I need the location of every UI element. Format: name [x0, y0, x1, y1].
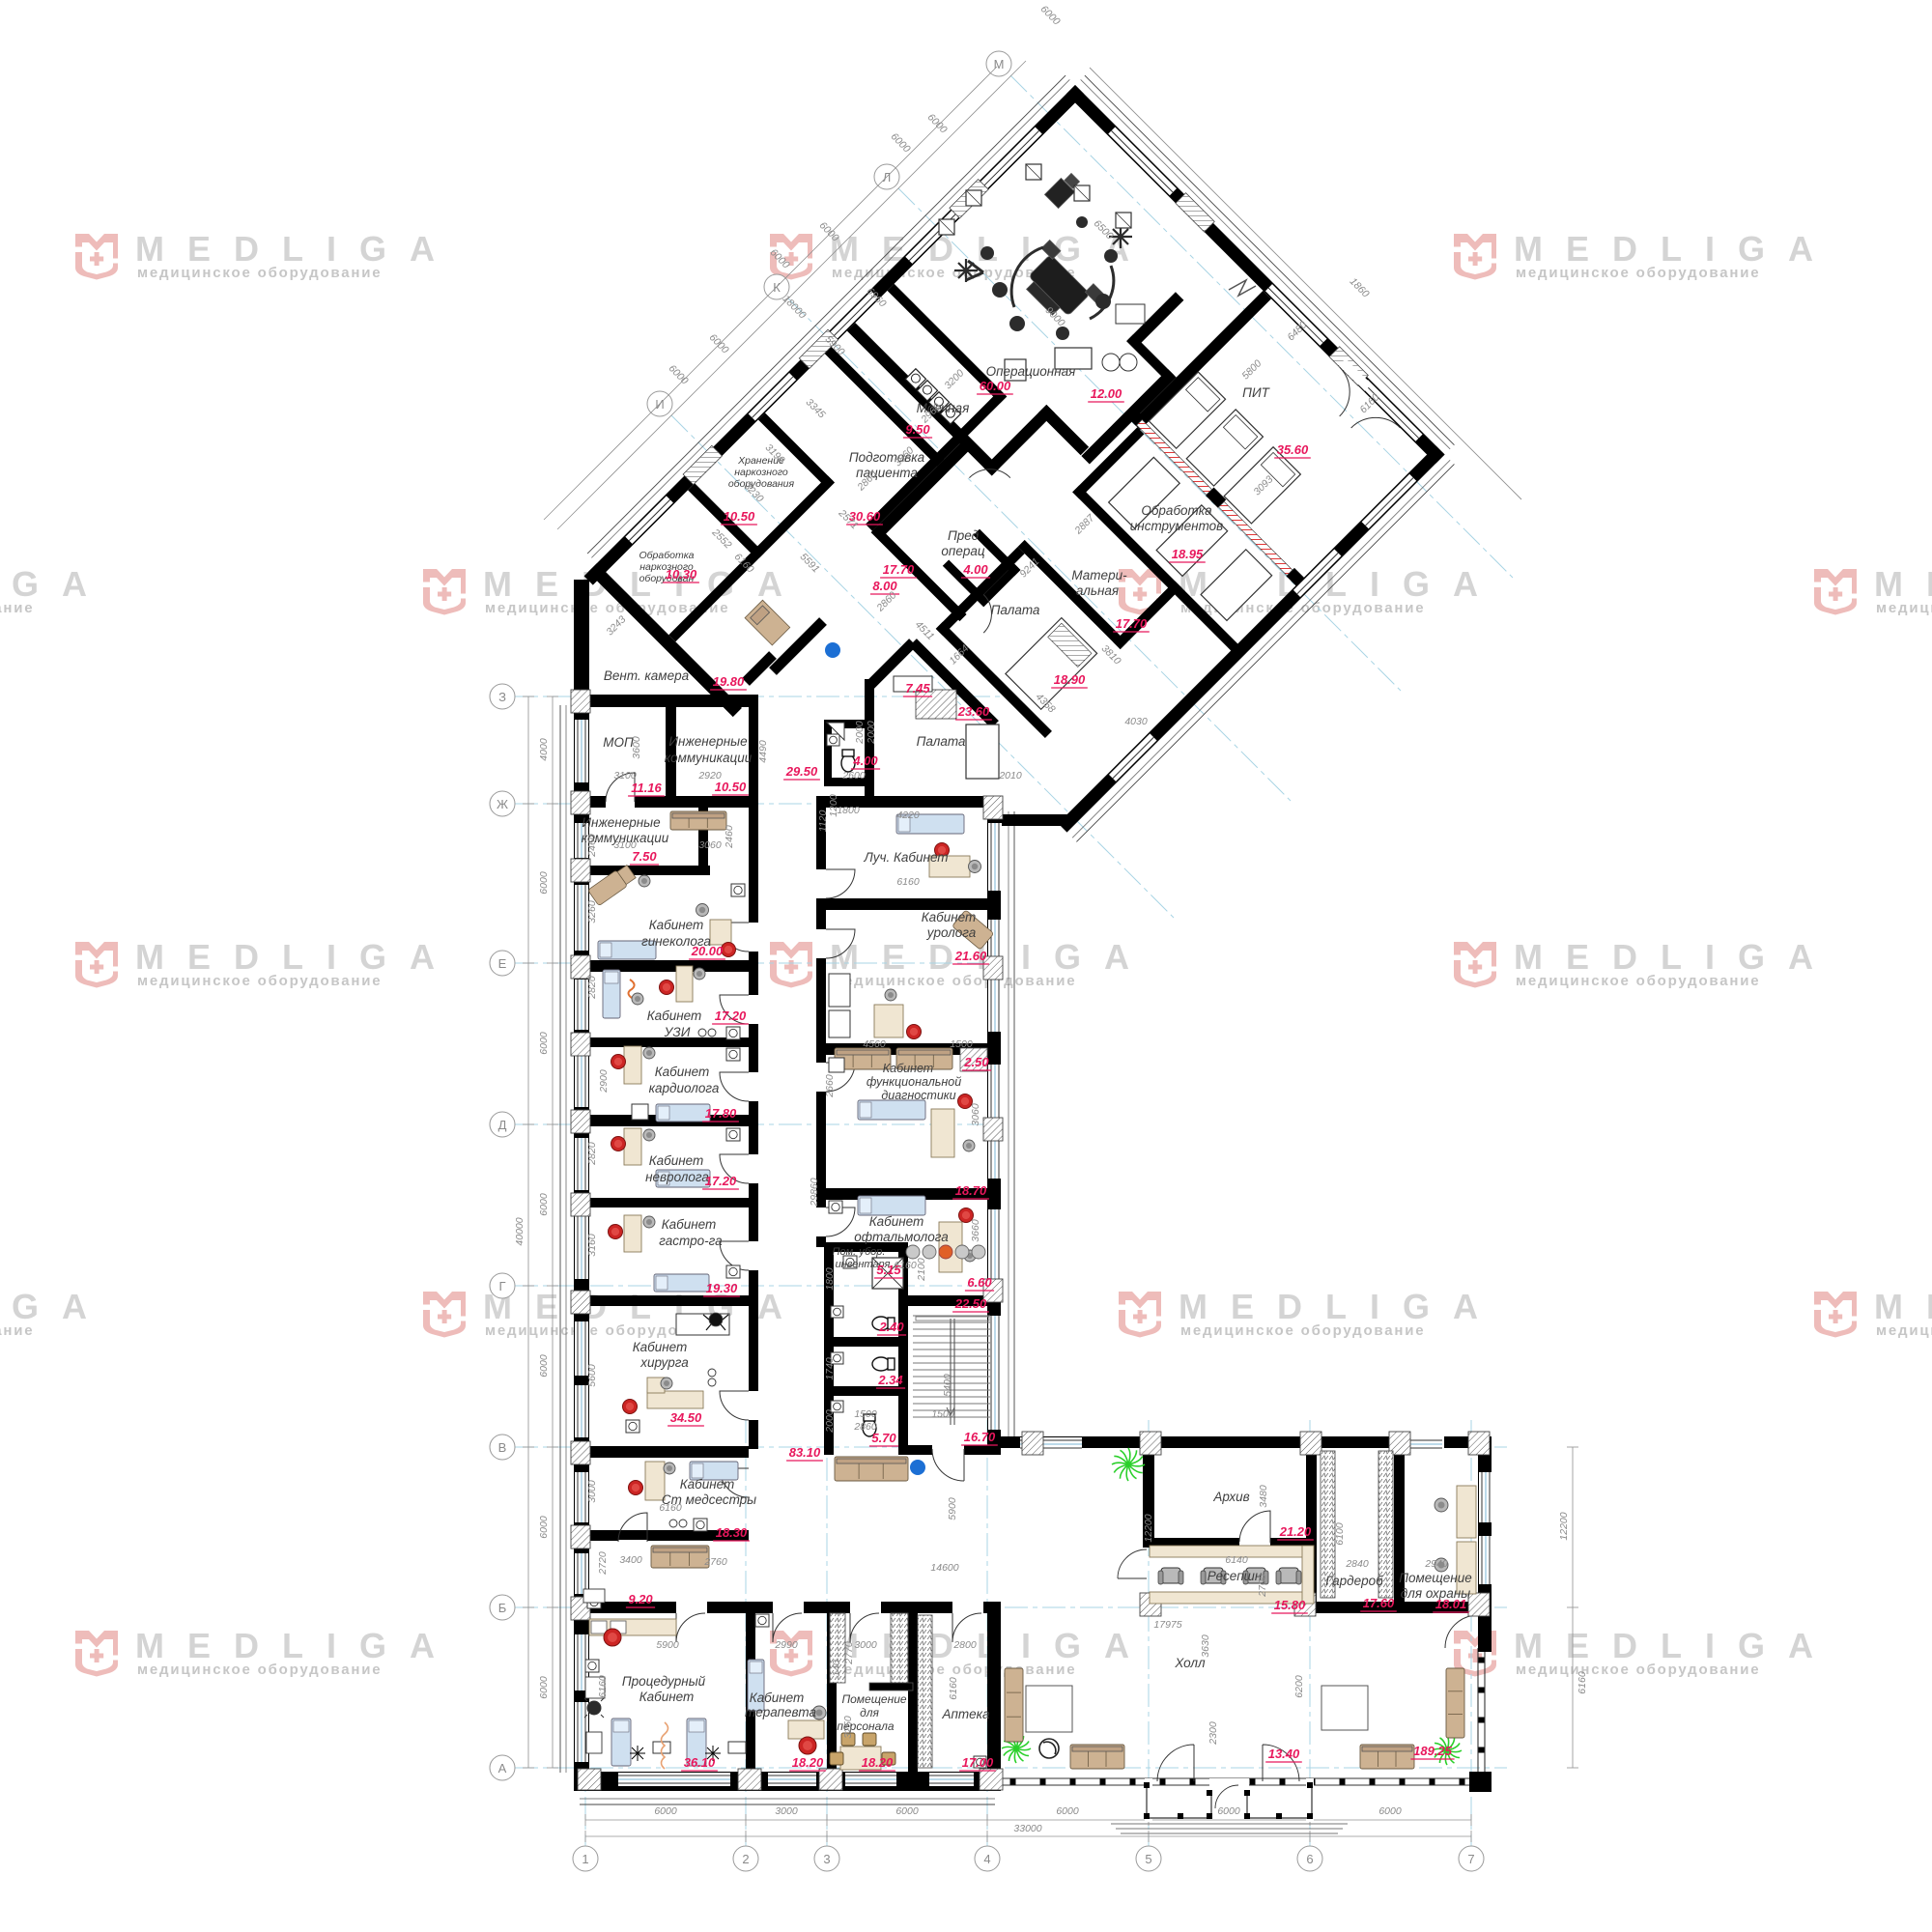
svg-text:наркозного: наркозного [734, 467, 788, 478]
svg-text:33000: 33000 [1013, 1823, 1041, 1834]
svg-text:Кабинет: Кабинет [639, 1690, 695, 1704]
svg-text:MEDLIGA: MEDLIGA [1514, 937, 1836, 977]
svg-text:19.80: 19.80 [713, 674, 745, 689]
svg-text:2700: 2700 [1257, 1574, 1268, 1598]
svg-text:17975: 17975 [1153, 1619, 1181, 1631]
svg-text:9.20: 9.20 [628, 1592, 653, 1606]
svg-text:Обработка: Обработка [639, 550, 694, 561]
svg-text:2860: 2860 [853, 1421, 877, 1433]
svg-text:35.60: 35.60 [1277, 442, 1309, 457]
svg-text:19.30: 19.30 [706, 1281, 738, 1295]
svg-text:23.60: 23.60 [957, 704, 990, 719]
svg-text:хирурга: хирурга [639, 1355, 689, 1370]
svg-text:13.40: 13.40 [1268, 1747, 1300, 1761]
svg-text:М: М [994, 57, 1005, 71]
svg-text:2.34: 2.34 [877, 1373, 903, 1387]
svg-text:3060: 3060 [698, 839, 722, 851]
svg-text:уролога: уролога [926, 925, 977, 940]
svg-text:17.60: 17.60 [1363, 1596, 1395, 1610]
svg-text:медицинское оборудование: медицинское оборудование [832, 973, 1076, 989]
svg-text:6000: 6000 [538, 1032, 550, 1055]
svg-text:З: З [498, 690, 506, 704]
svg-text:медицинское оборудование: медицинское оборудование [1516, 265, 1760, 281]
svg-text:Д: Д [498, 1118, 507, 1132]
svg-text:5900: 5900 [947, 1497, 958, 1520]
svg-text:5400: 5400 [942, 1374, 953, 1397]
svg-text:6160: 6160 [948, 1677, 959, 1700]
svg-text:2920: 2920 [697, 770, 722, 781]
svg-text:Луч. Кабинет: Луч. Кабинет [863, 850, 948, 865]
svg-text:оборудования: оборудования [728, 478, 795, 490]
svg-text:16.70: 16.70 [964, 1430, 996, 1444]
svg-text:11.16: 11.16 [631, 781, 662, 795]
svg-text:5900: 5900 [656, 1639, 679, 1651]
svg-text:6000: 6000 [1056, 1805, 1079, 1817]
svg-text:36.10: 36.10 [684, 1755, 716, 1770]
svg-text:3000: 3000 [586, 1480, 598, 1503]
svg-text:6160: 6160 [896, 876, 920, 888]
svg-text:медицинское оборудование: медицинское оборудование [1876, 600, 1932, 616]
svg-text:MEDLIGA: MEDLIGA [0, 1287, 110, 1326]
svg-text:функциональной: функциональной [867, 1075, 961, 1089]
svg-text:А: А [498, 1761, 507, 1776]
svg-text:Б: Б [498, 1601, 507, 1615]
svg-text:MEDLIGA: MEDLIGA [1514, 229, 1836, 269]
svg-text:невролога: невролога [645, 1170, 709, 1184]
svg-text:офтальмолога: офтальмолога [854, 1230, 949, 1244]
svg-text:2820: 2820 [586, 1142, 598, 1166]
svg-text:2760: 2760 [703, 1556, 727, 1568]
svg-text:6140: 6140 [1225, 1554, 1248, 1566]
svg-text:MEDLIGA: MEDLIGA [0, 564, 110, 604]
svg-text:2100: 2100 [916, 1258, 927, 1282]
svg-text:2.50: 2.50 [963, 1055, 989, 1069]
svg-text:медицинское оборудование: медицинское оборудование [832, 1662, 1076, 1678]
svg-text:2940: 2940 [1424, 1558, 1448, 1570]
svg-text:медицинское оборудование: медицинское оборудование [1876, 1322, 1932, 1339]
svg-text:7.45: 7.45 [905, 681, 930, 696]
svg-text:MEDLIGA: MEDLIGA [135, 1626, 458, 1665]
svg-text:2990: 2990 [774, 1639, 798, 1651]
svg-text:40000: 40000 [514, 1217, 526, 1245]
svg-text:Инженерные: Инженерные [582, 815, 660, 830]
svg-text:4220: 4220 [896, 810, 920, 821]
svg-text:34.50: 34.50 [670, 1410, 702, 1425]
svg-text:Кабинет: Кабинет [649, 918, 704, 932]
svg-text:3660: 3660 [970, 1219, 981, 1242]
svg-text:Ресепшн: Ресепшн [1207, 1569, 1263, 1583]
svg-text:В: В [498, 1440, 507, 1455]
svg-text:6160: 6160 [1577, 1671, 1588, 1694]
svg-text:Кабинет: Кабинет [869, 1214, 924, 1229]
svg-text:6: 6 [1306, 1852, 1313, 1866]
svg-text:Аптека: Аптека [941, 1707, 990, 1721]
svg-text:6000: 6000 [538, 871, 550, 895]
svg-text:2820: 2820 [586, 976, 598, 1000]
svg-text:альная: альная [1076, 583, 1119, 598]
svg-text:8.00: 8.00 [872, 579, 897, 593]
svg-text:Е: Е [498, 956, 507, 971]
svg-text:кардиолога: кардиолога [649, 1081, 720, 1095]
svg-text:медицинское оборудование: медицинское оборудование [137, 973, 382, 989]
svg-text:17.80: 17.80 [705, 1106, 737, 1121]
svg-text:2.40: 2.40 [878, 1320, 904, 1334]
svg-text:10.50: 10.50 [724, 509, 755, 524]
svg-text:5: 5 [1145, 1852, 1151, 1866]
svg-text:MEDLIGA: MEDLIGA [1874, 564, 1932, 604]
svg-text:2660: 2660 [824, 1074, 836, 1098]
svg-text:медицинское оборудование: медицинское оборудование [137, 1662, 382, 1678]
svg-text:2770: 2770 [843, 1641, 855, 1665]
svg-text:18.70: 18.70 [955, 1183, 987, 1198]
svg-text:MEDLIGA: MEDLIGA [1179, 1287, 1501, 1326]
svg-text:140: 140 [831, 1660, 842, 1677]
svg-text:диагностики: диагностики [881, 1089, 955, 1102]
svg-text:6000: 6000 [538, 1354, 550, 1378]
svg-text:гастро-га: гастро-га [659, 1234, 723, 1248]
svg-text:Обработка: Обработка [1141, 503, 1212, 518]
svg-text:18.95: 18.95 [1172, 547, 1204, 561]
svg-text:1500: 1500 [950, 1038, 973, 1050]
svg-text:4030: 4030 [1124, 716, 1148, 727]
svg-text:4000: 4000 [538, 738, 550, 761]
svg-text:медицинское оборудование: медицинское оборудование [0, 600, 34, 616]
svg-text:Палата: Палата [917, 734, 966, 749]
svg-text:2720: 2720 [597, 1551, 609, 1576]
svg-text:Инженерные: Инженерные [668, 734, 747, 749]
svg-text:1740: 1740 [824, 1357, 836, 1380]
svg-text:83.10: 83.10 [789, 1445, 821, 1460]
svg-text:6160: 6160 [597, 1675, 609, 1698]
svg-text:Операционная: Операционная [986, 364, 1076, 379]
svg-text:22.50: 22.50 [954, 1296, 987, 1311]
svg-text:MEDLIGA: MEDLIGA [1514, 1626, 1836, 1665]
svg-text:Кабинет: Кабинет [649, 1153, 704, 1168]
svg-text:Помещение: Помещение [1399, 1571, 1472, 1585]
svg-text:коммуникации: коммуникации [665, 751, 753, 765]
svg-text:Вент. камера: Вент. камера [604, 668, 690, 683]
svg-text:медицинское оборудование: медицинское оборудование [0, 1322, 34, 1339]
svg-text:Кабинет: Кабинет [647, 1009, 702, 1023]
svg-text:2000: 2000 [824, 1409, 836, 1434]
svg-text:Кабинет: Кабинет [922, 910, 977, 924]
svg-text:6000: 6000 [1378, 1805, 1402, 1817]
svg-text:1500: 1500 [931, 1408, 954, 1420]
svg-text:Процедурный: Процедурный [622, 1674, 706, 1689]
svg-text:2000: 2000 [866, 721, 877, 745]
svg-text:К: К [773, 280, 781, 295]
svg-text:20.00: 20.00 [691, 944, 724, 958]
svg-text:MEDLIGA: MEDLIGA [1874, 1287, 1932, 1326]
svg-text:12200: 12200 [1143, 1514, 1154, 1542]
svg-text:6000: 6000 [538, 1676, 550, 1699]
svg-text:60.00: 60.00 [980, 379, 1011, 393]
svg-text:4: 4 [983, 1852, 990, 1866]
svg-text:ПИТ: ПИТ [1242, 385, 1270, 400]
svg-text:7: 7 [1467, 1852, 1474, 1866]
svg-text:Гардероб: Гардероб [1325, 1574, 1383, 1588]
svg-text:Кабинет: Кабинет [883, 1062, 933, 1075]
svg-text:18.20: 18.20 [862, 1755, 894, 1770]
svg-text:4.00: 4.00 [962, 562, 988, 577]
svg-text:4490: 4490 [757, 740, 769, 763]
svg-text:Кабинет: Кабинет [633, 1340, 688, 1354]
svg-text:3: 3 [823, 1852, 830, 1866]
svg-text:терапевта: терапевта [745, 1705, 817, 1719]
svg-text:6160: 6160 [659, 1502, 682, 1514]
svg-text:для: для [860, 1706, 879, 1719]
svg-text:6100: 6100 [1334, 1522, 1346, 1546]
svg-text:МОП: МОП [603, 735, 634, 750]
svg-text:15.80: 15.80 [1274, 1598, 1306, 1612]
svg-text:3400: 3400 [619, 1554, 642, 1566]
svg-text:3100: 3100 [613, 839, 637, 851]
svg-text:2000: 2000 [854, 721, 866, 745]
svg-text:17.00: 17.00 [962, 1755, 994, 1770]
svg-text:3000: 3000 [854, 1639, 877, 1651]
svg-text:1200: 1200 [828, 794, 839, 817]
svg-text:6160: 6160 [894, 1260, 917, 1271]
svg-text:18.01: 18.01 [1435, 1597, 1467, 1611]
svg-text:17.20: 17.20 [705, 1174, 737, 1188]
svg-text:3260: 3260 [586, 900, 598, 923]
svg-text:21.60: 21.60 [954, 949, 987, 963]
svg-text:Кабинет: Кабинет [750, 1690, 805, 1705]
svg-text:29860: 29860 [809, 1178, 820, 1207]
svg-text:10.30: 10.30 [666, 567, 697, 582]
svg-text:189.25: 189.25 [1413, 1744, 1453, 1758]
svg-text:1500: 1500 [854, 1408, 877, 1420]
svg-text:Ж: Ж [497, 797, 508, 811]
svg-text:медицинское оборудование: медицинское оборудование [1516, 1662, 1760, 1678]
svg-text:медицинское оборудование: медицинское оборудование [1180, 1322, 1425, 1339]
svg-text:12.00: 12.00 [1091, 386, 1122, 401]
svg-text:7.50: 7.50 [632, 849, 657, 864]
svg-text:Пред: Пред [948, 528, 980, 543]
svg-text:Матери-: Матери- [1071, 568, 1127, 582]
svg-text:10.50: 10.50 [715, 780, 747, 794]
svg-text:Кабинет: Кабинет [680, 1477, 735, 1492]
svg-text:2460: 2460 [586, 834, 598, 858]
svg-text:4.00: 4.00 [852, 753, 878, 768]
svg-text:Архив: Архив [1212, 1490, 1249, 1504]
svg-text:6000: 6000 [538, 1193, 550, 1216]
svg-text:6000: 6000 [538, 1516, 550, 1539]
svg-text:21.20: 21.20 [1279, 1524, 1312, 1539]
svg-text:MEDLIGA: MEDLIGA [135, 937, 458, 977]
svg-text:3600: 3600 [631, 736, 642, 759]
svg-text:5600: 5600 [586, 1364, 598, 1387]
svg-text:3100: 3100 [613, 770, 637, 781]
svg-text:2: 2 [742, 1852, 749, 1866]
svg-text:Палата: Палата [991, 603, 1040, 617]
svg-text:3250: 3250 [842, 1716, 854, 1739]
svg-text:УЗИ: УЗИ [664, 1025, 691, 1039]
svg-text:2010: 2010 [998, 770, 1022, 781]
svg-text:1800: 1800 [824, 1267, 836, 1291]
svg-text:2600: 2600 [841, 770, 866, 781]
svg-text:Пом. убор.: Пом. убор. [833, 1246, 886, 1258]
svg-text:6000: 6000 [654, 1805, 677, 1817]
svg-text:18.20: 18.20 [792, 1755, 824, 1770]
svg-text:1120: 1120 [817, 810, 829, 833]
svg-text:MEDLIGA: MEDLIGA [135, 229, 458, 269]
svg-text:2460: 2460 [724, 825, 735, 849]
svg-text:3060: 3060 [970, 1103, 981, 1126]
svg-text:Кабинет: Кабинет [655, 1065, 710, 1079]
svg-text:6000: 6000 [1217, 1805, 1240, 1817]
svg-text:6200: 6200 [1293, 1675, 1305, 1698]
svg-text:6.60: 6.60 [967, 1275, 992, 1290]
svg-text:инструментов: инструментов [1130, 519, 1223, 533]
svg-text:медицинское оборудование: медицинское оборудование [1516, 973, 1760, 989]
svg-text:14600: 14600 [930, 1562, 958, 1574]
svg-text:12200: 12200 [1558, 1512, 1570, 1540]
svg-text:4560: 4560 [863, 1038, 886, 1050]
svg-text:29.50: 29.50 [785, 764, 818, 779]
svg-text:1800: 1800 [837, 805, 860, 816]
svg-text:18.30: 18.30 [716, 1525, 748, 1540]
svg-text:17.20: 17.20 [715, 1009, 747, 1023]
svg-text:3630: 3630 [1200, 1634, 1211, 1658]
svg-text:18.90: 18.90 [1054, 672, 1086, 687]
svg-text:3160: 3160 [586, 1234, 598, 1257]
svg-text:5.70: 5.70 [871, 1431, 896, 1445]
svg-text:3000: 3000 [775, 1805, 798, 1817]
svg-text:17.70: 17.70 [1116, 616, 1148, 631]
svg-text:3480: 3480 [1258, 1485, 1269, 1508]
svg-text:Помещение: Помещение [841, 1692, 906, 1706]
svg-text:1: 1 [582, 1852, 588, 1866]
svg-text:2900: 2900 [598, 1069, 610, 1094]
svg-text:2800: 2800 [952, 1639, 977, 1651]
svg-text:6000: 6000 [895, 1805, 919, 1817]
svg-text:операц: операц [941, 544, 984, 558]
svg-text:медицинское оборудование: медицинское оборудование [137, 265, 382, 281]
svg-text:2300: 2300 [1207, 1721, 1219, 1746]
svg-text:2840: 2840 [1345, 1558, 1369, 1570]
svg-text:Кабинет: Кабинет [662, 1217, 717, 1232]
svg-text:17.70: 17.70 [883, 562, 915, 577]
svg-text:Г: Г [498, 1279, 505, 1293]
